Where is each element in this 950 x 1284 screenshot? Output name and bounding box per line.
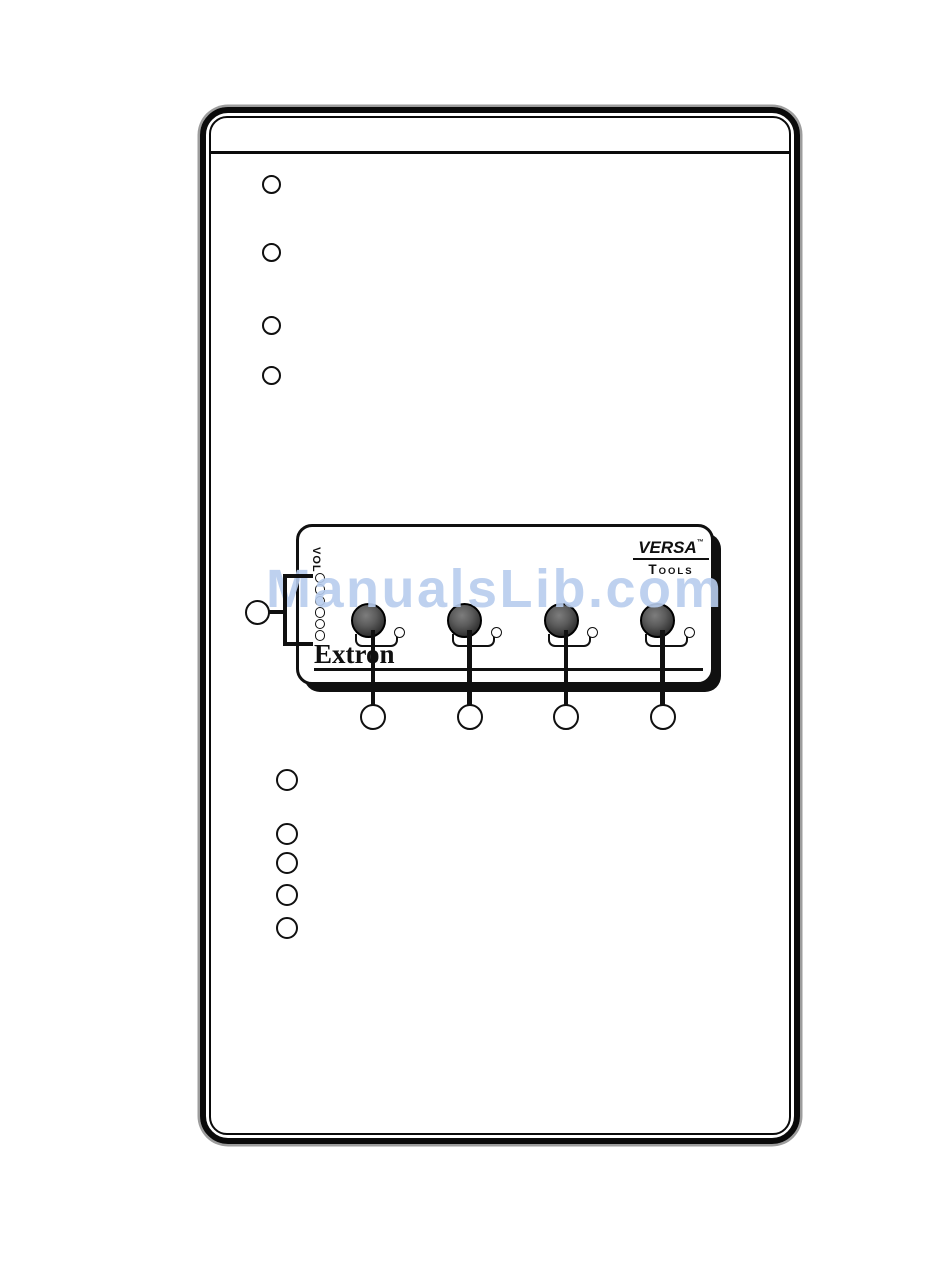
callout-bracket-vertical xyxy=(283,574,287,646)
extron-logo: Extron xyxy=(314,641,395,668)
knob-4-leader-line xyxy=(660,630,665,706)
knob-3-led xyxy=(587,627,598,638)
callout-circle-lower-1 xyxy=(276,769,298,791)
vol-led-5 xyxy=(315,619,326,630)
callout-circle-upper-3 xyxy=(262,316,281,335)
knob-3-leader-line xyxy=(564,630,569,706)
knob-2-leader-line xyxy=(467,630,472,706)
knob-2-led xyxy=(491,627,502,638)
callout-circle-volume xyxy=(245,600,270,625)
callout-circle-knob-3 xyxy=(553,704,579,730)
knob-4-led xyxy=(684,627,695,638)
callout-bracket-tick-top xyxy=(283,574,313,578)
manual-page: VOL VERSA™ TOOLS Extron ManualsLib.com xyxy=(0,0,950,1284)
callout-circle-knob-1 xyxy=(360,704,386,730)
knob-1-leader-line xyxy=(371,630,376,706)
callout-circle-lower-2 xyxy=(276,823,298,845)
callout-circle-knob-4 xyxy=(650,704,676,730)
manualslib-watermark: ManualsLib.com xyxy=(266,558,724,620)
callout-circle-upper-4 xyxy=(262,366,281,385)
header-rule xyxy=(211,151,789,154)
callout-circle-lower-5 xyxy=(276,917,298,939)
versa-wordmark: VERSA™ xyxy=(633,539,709,560)
callout-bracket-tick-bottom xyxy=(283,642,313,646)
callout-circle-upper-2 xyxy=(262,243,281,262)
callout-circle-lower-3 xyxy=(276,852,298,874)
callout-circle-knob-2 xyxy=(457,704,483,730)
callout-circle-upper-1 xyxy=(262,175,281,194)
trademark-symbol: ™ xyxy=(697,539,704,546)
knob-1-led xyxy=(394,627,405,638)
callout-circle-lower-4 xyxy=(276,884,298,906)
